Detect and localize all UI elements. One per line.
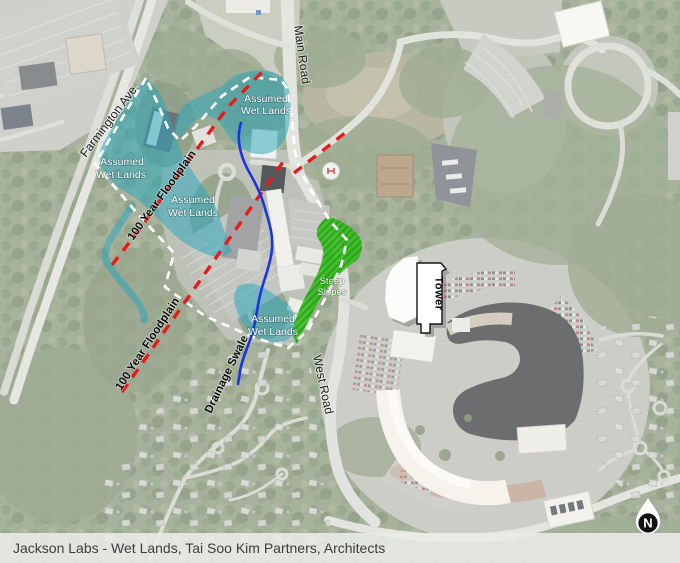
svg-text:Assumed: Assumed	[171, 194, 215, 206]
steep-slopes-label: Steep Slopes	[317, 276, 346, 298]
svg-text:Slopes: Slopes	[317, 287, 346, 298]
tower-label: Tower	[433, 276, 445, 310]
wetland-label-center: Assumed Wet Lands	[168, 194, 218, 219]
wetland-label-west: Assumed Wet Lands	[96, 156, 146, 181]
svg-text:Assumed: Assumed	[100, 156, 144, 168]
svg-text:Wet Lands: Wet Lands	[96, 169, 146, 181]
wetland-label-northeast: Assumed Wet Lands	[241, 93, 291, 117]
wetland-label-south: Assumed Wet Lands	[248, 313, 298, 338]
caption-text: Jackson Labs - Wet Lands, Tai Soo Kim Pa…	[13, 540, 385, 556]
svg-text:Wet Lands: Wet Lands	[248, 326, 298, 338]
caption-bar: Jackson Labs - Wet Lands, Tai Soo Kim Pa…	[0, 533, 680, 563]
svg-text:Wet Lands: Wet Lands	[168, 207, 218, 219]
svg-text:Wet Lands: Wet Lands	[241, 105, 291, 117]
site-analysis-map: Tower Farmington Ave. Main Road West Roa…	[0, 0, 680, 563]
svg-text:Steep: Steep	[320, 276, 345, 287]
svg-text:Assumed: Assumed	[251, 313, 295, 325]
svg-text:Assumed: Assumed	[244, 93, 288, 105]
north-arrow-n: N	[643, 516, 652, 531]
